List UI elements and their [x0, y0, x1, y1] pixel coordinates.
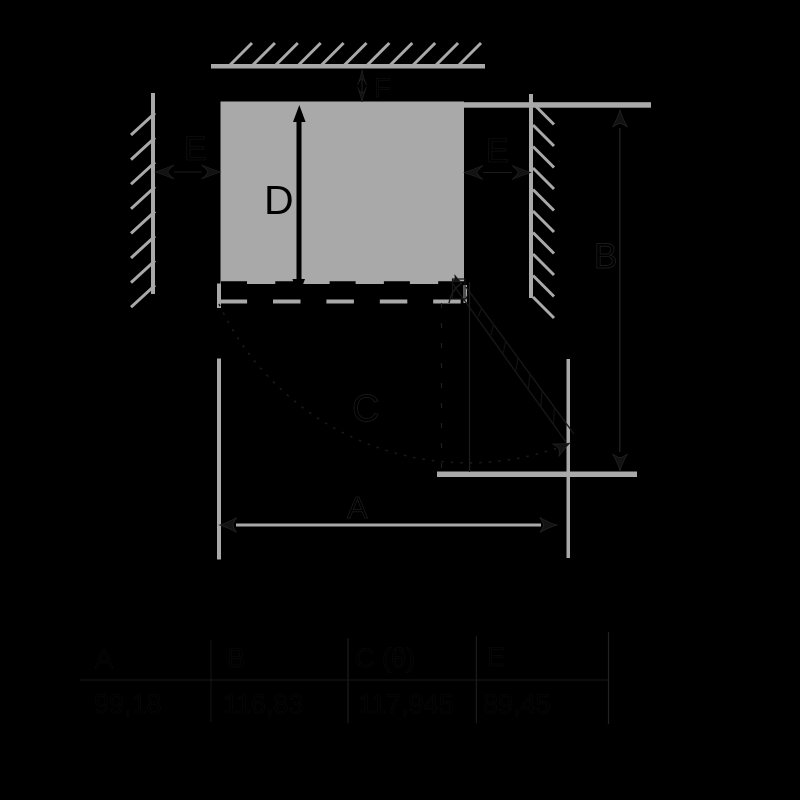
svg-text:A: A [347, 490, 368, 525]
svg-text:D: D [264, 177, 294, 223]
svg-text:B: B [227, 643, 245, 673]
svg-text:E: E [486, 132, 509, 170]
svg-text:116,83: 116,83 [223, 689, 304, 719]
svg-text:117,945: 117,945 [358, 689, 454, 719]
svg-text:E: E [487, 642, 505, 672]
svg-text:99,18: 99,18 [94, 689, 162, 719]
svg-text:C (θ): C (θ) [355, 643, 415, 673]
svg-text:B: B [594, 237, 617, 276]
svg-text:A: A [95, 644, 113, 674]
svg-text:89,45: 89,45 [483, 689, 551, 719]
svg-text:C: C [352, 388, 379, 430]
svg-text:F: F [374, 73, 391, 103]
svg-text:E: E [184, 130, 207, 168]
